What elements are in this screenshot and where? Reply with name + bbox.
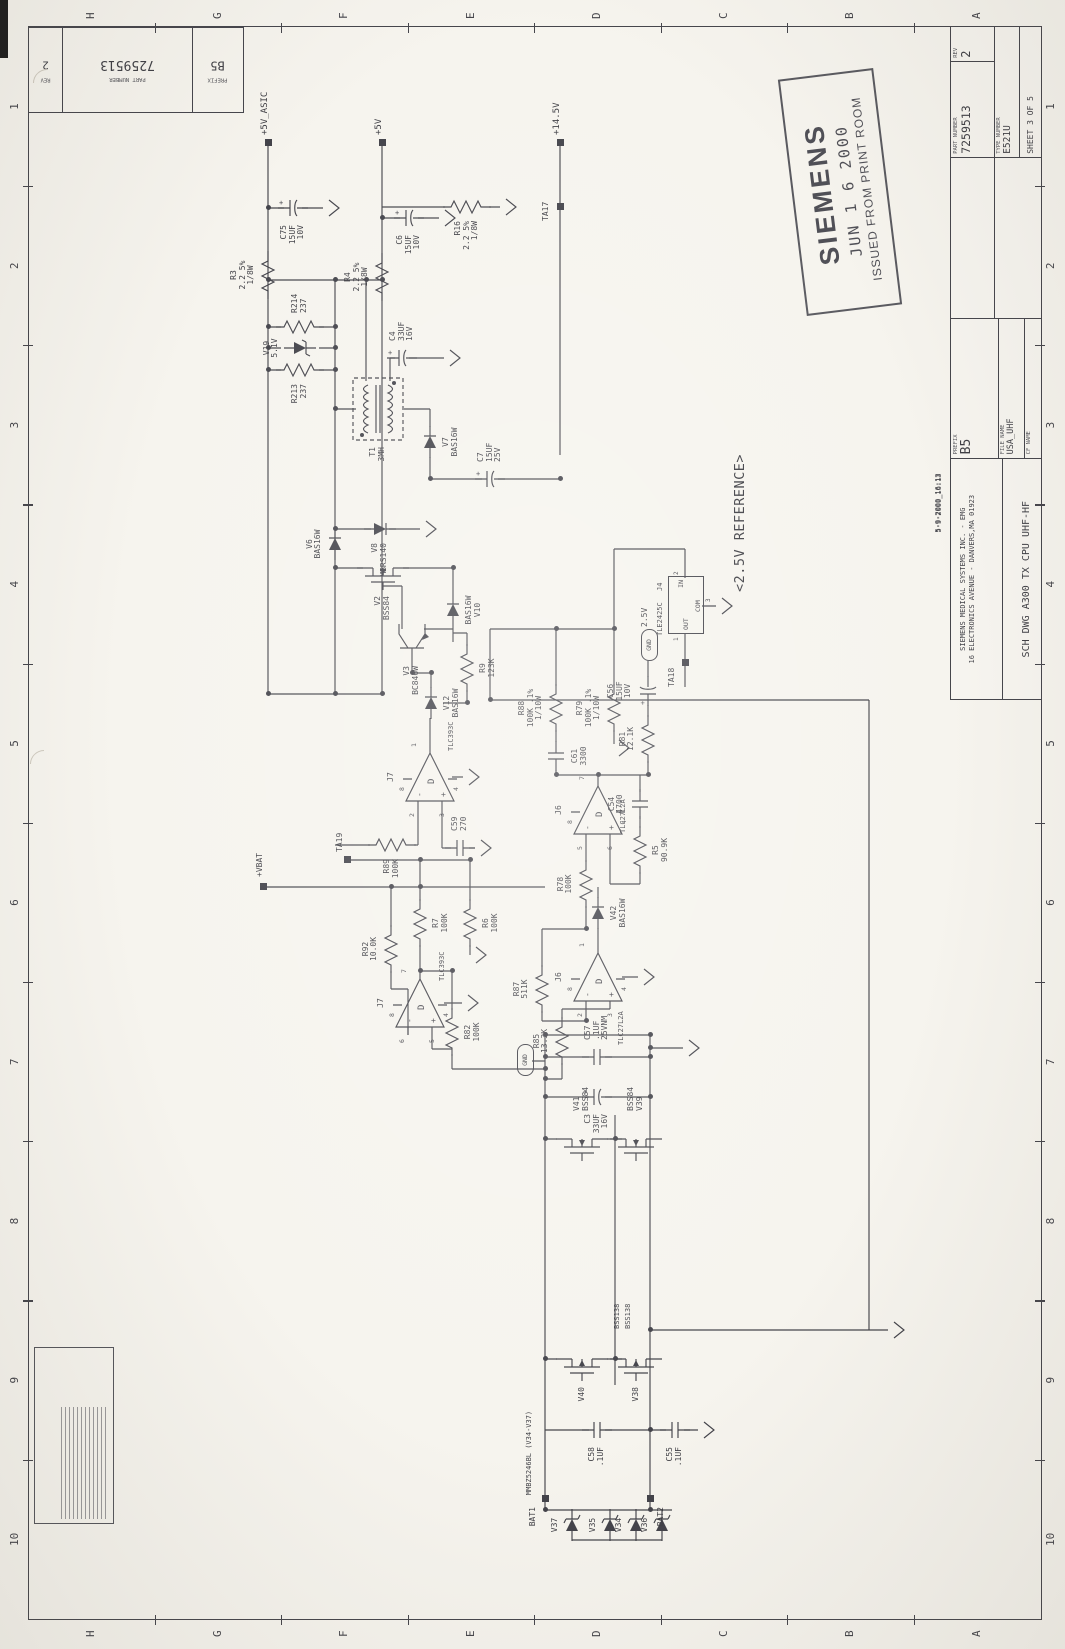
- schematic-text: TLC27L2A: [617, 1011, 625, 1045]
- grid-tick: [1035, 823, 1045, 824]
- grid-row-label: H: [84, 1630, 97, 1637]
- grid-tick: [1035, 982, 1045, 983]
- grid-tick: [23, 504, 33, 505]
- svg-text:+: +: [639, 701, 647, 705]
- component-label-V42: V42BAS16W: [610, 898, 627, 927]
- grid-tick: [23, 1300, 33, 1301]
- component-label-R6: R6100K: [482, 913, 499, 933]
- svg-text:-: -: [583, 825, 592, 830]
- grid-tick: [1035, 664, 1045, 665]
- corner-part-number-value: 7259513: [100, 58, 155, 73]
- corner-part-number-label: PART NUMBER: [100, 77, 155, 83]
- net-node-square: [260, 884, 267, 891]
- grid-row-label: A: [970, 12, 983, 19]
- ground-icon: [505, 198, 518, 216]
- component-T1: [352, 377, 404, 441]
- grid-column-label: 8: [8, 1214, 21, 1228]
- grid-tick: [23, 186, 33, 187]
- component-label-R79: R79100K .1%1/10W: [576, 688, 602, 727]
- grid-tick: [23, 345, 33, 346]
- cf-name-label: CF NAME: [1026, 323, 1032, 455]
- ground-icon: [425, 520, 438, 538]
- component-label-C4: C433UF16V: [389, 322, 415, 341]
- component-R6: [462, 899, 478, 947]
- grid-tick: [661, 1615, 662, 1625]
- component-label-J6B: J6: [555, 972, 564, 982]
- grid-tick: [23, 1460, 33, 1461]
- component-C59: [445, 837, 475, 859]
- grid-tick: [23, 1141, 33, 1142]
- type-number-value: E521U: [1002, 125, 1013, 154]
- schematic-text: TA17: [541, 202, 550, 221]
- component-V38: [610, 1337, 662, 1381]
- component-label-V12: V12BAS16W: [443, 688, 460, 717]
- pin-number: 6: [398, 1039, 406, 1043]
- grid-tick: [23, 664, 33, 665]
- grid-column-label: 4: [1044, 577, 1057, 591]
- file-name-value: USA_UHF: [1006, 419, 1016, 455]
- grid-column-label: 2: [1044, 259, 1057, 273]
- corner-prefix-value: B5: [210, 59, 224, 73]
- ground-icon: [688, 1039, 701, 1057]
- sheet-of-value: SHEET 3 OF 5: [1026, 96, 1035, 154]
- pin-number: 8: [566, 987, 574, 991]
- schematic-text: 2: [673, 571, 680, 575]
- proprietary-notes-block: [34, 1347, 114, 1524]
- ground-icon: [721, 597, 734, 615]
- schematic-text: J4: [656, 583, 664, 591]
- component-R88: [548, 684, 564, 732]
- svg-text:+: +: [279, 199, 283, 207]
- component-label-C56: C5615UF10V: [607, 681, 633, 701]
- svg-text:D: D: [595, 812, 605, 817]
- component-R16: [443, 199, 491, 215]
- plot-date: 5-9-2000_16:13: [934, 473, 942, 532]
- schematic-text: +5V_ASIC: [260, 92, 270, 135]
- component-label-C7: C715UF25V: [477, 443, 503, 462]
- component-C4: +: [387, 347, 417, 369]
- component-R9: [459, 644, 475, 692]
- component-label-C57: C57.1UF25VNM: [584, 1016, 610, 1040]
- ground-icon: [449, 349, 462, 367]
- grid-tick: [23, 982, 33, 983]
- fine-print: [61, 1407, 107, 1519]
- component-R5: [632, 826, 648, 874]
- grid-column-label: 10: [1044, 1532, 1057, 1546]
- component-C56: +: [637, 676, 659, 706]
- svg-text:D: D: [595, 979, 605, 984]
- grid-tick: [281, 23, 282, 33]
- schematic-text: TLC27L2A: [619, 799, 627, 833]
- svg-text:+: +: [429, 1018, 438, 1023]
- grid-row-label: E: [464, 12, 477, 19]
- company-address: 16 ELECTRONICS AVENUE - DANVERS,MA 01923: [968, 495, 976, 664]
- component-label-R4: R42.2 5%1/8W: [344, 262, 370, 291]
- pin-number: 4: [452, 787, 460, 791]
- svg-text:+: +: [476, 470, 480, 478]
- net-node-square: [379, 140, 386, 147]
- grid-row-label: B: [843, 1630, 856, 1637]
- grid-tick: [1035, 186, 1045, 187]
- component-label-V19: V195.1V: [263, 338, 280, 358]
- schematic-text: BSS138: [624, 1304, 632, 1329]
- pin-number: 4: [620, 987, 628, 991]
- grid-tick: [1035, 504, 1045, 505]
- grid-tick: [155, 1615, 156, 1625]
- net-node-square: [344, 857, 351, 864]
- grid-row-label: D: [590, 1630, 603, 1637]
- svg-text:-: -: [405, 1018, 414, 1023]
- part-number-value: 7259513: [959, 105, 973, 153]
- grid-column-label: 6: [1044, 896, 1057, 910]
- net-node-square: [557, 140, 564, 147]
- ground-icon: [703, 1421, 716, 1439]
- pin-number: 8: [398, 787, 406, 791]
- pin-number: 3: [438, 813, 446, 817]
- component-label-R16: R162.2 5%1/8W: [454, 221, 480, 250]
- component-V39: [610, 1117, 662, 1161]
- svg-text:D: D: [427, 779, 437, 784]
- component-label-R92: R9210.0K: [362, 937, 379, 962]
- ground-icon: [893, 1321, 906, 1339]
- schematic-text: 3: [705, 598, 712, 602]
- svg-text:+: +: [607, 992, 616, 997]
- ground-icon: [467, 994, 480, 1012]
- svg-text:+: +: [607, 825, 616, 830]
- grid-row-label: F: [337, 1630, 350, 1637]
- schematic-text: BAT2: [656, 1507, 665, 1526]
- schematic-layer: [0, 0, 1065, 1649]
- component-R89: [368, 837, 416, 853]
- pin-number: 8: [566, 820, 574, 824]
- component-V37: [564, 1509, 580, 1541]
- net-node-square: [682, 660, 689, 667]
- component-label-J7A: J7: [387, 772, 396, 782]
- svg-text:+: +: [388, 349, 392, 357]
- component-label-V10: BAS16WV10: [465, 595, 482, 624]
- ground-icon: [328, 199, 341, 217]
- component-J4: OUTINCOM: [668, 576, 704, 634]
- component-C55: [660, 1419, 690, 1441]
- grid-tick: [1035, 1300, 1045, 1301]
- grid-tick: [408, 1615, 409, 1625]
- component-V10: [445, 594, 461, 626]
- grid-tick: [408, 23, 409, 33]
- ground-icon: [468, 768, 481, 786]
- pin-number: 2: [408, 813, 416, 817]
- grid-column-label: 6: [8, 896, 21, 910]
- schematic-text: TA18: [667, 668, 676, 687]
- prefix-label: PREFIX: [953, 323, 959, 455]
- grid-column-label: 7: [1044, 1055, 1057, 1069]
- schematic-text: 1: [673, 637, 680, 641]
- net-node-square: [265, 140, 272, 147]
- component-label-J6A: J6: [555, 805, 564, 815]
- component-label-V3: V3BC846W: [403, 666, 420, 695]
- component-V3: [394, 624, 430, 660]
- grid-tick: [914, 23, 915, 33]
- component-V12: [423, 687, 439, 719]
- component-C75: +: [278, 197, 308, 219]
- grid-column-label: 8: [1044, 1214, 1057, 1228]
- grid-column-label: 2: [8, 259, 21, 273]
- svg-text:-: -: [415, 792, 424, 797]
- component-C54: [629, 789, 651, 819]
- component-label-T1: T13MH: [369, 447, 386, 462]
- component-label-C59: C59270: [451, 817, 468, 831]
- component-label-R78: R78100K: [557, 874, 574, 894]
- schematic-text: TA19: [335, 833, 344, 852]
- grid-tick: [534, 23, 535, 33]
- component-label-C75: C7515UF10V: [280, 225, 306, 245]
- prefix-value: B5: [959, 439, 974, 455]
- grid-row-label: G: [211, 1630, 224, 1637]
- component-label-V40: V40: [578, 1387, 587, 1402]
- grid-tick: [914, 1615, 915, 1625]
- schematic-text: BAT1: [528, 1507, 537, 1526]
- grid-tick: [661, 23, 662, 33]
- component-label-R82: R82100K: [464, 1022, 481, 1042]
- component-J6B: -+D: [568, 945, 628, 1009]
- pin-number: 7: [578, 776, 586, 780]
- grid-tick: [155, 23, 156, 33]
- grid-column-label: 1: [8, 100, 21, 114]
- grid-row-label: C: [717, 12, 730, 19]
- grid-tick: [1035, 345, 1045, 346]
- ground-icon: [643, 968, 656, 986]
- grid-tick: [23, 823, 33, 824]
- pin-number: 5: [576, 846, 584, 850]
- grid-column-label: 1: [1044, 100, 1057, 114]
- grid-column-label: 5: [1044, 736, 1057, 750]
- corner-prefix-label: PREFIX: [208, 77, 228, 83]
- component-V2: [357, 546, 409, 590]
- landscape-drawing: SIEMENS MEDICAL SYSTEMS INC. - EMG 16 EL…: [0, 0, 1065, 1649]
- component-label-R7: R7100K: [432, 913, 449, 933]
- schematic-text: +5V: [374, 119, 384, 135]
- pin-number: 8: [388, 1013, 396, 1017]
- component-label-R85: R8513.3K: [533, 1029, 550, 1054]
- component-label-C6: C615UF10V: [396, 235, 422, 255]
- component-V7: [422, 426, 438, 458]
- component-label-R214: R214237: [291, 294, 308, 313]
- schematic-text: MMBZ5246BL (V34-V37): [525, 1411, 533, 1495]
- grid-row-label: H: [84, 12, 97, 19]
- pin-number: 5: [428, 1039, 436, 1043]
- grid-tick: [787, 23, 788, 33]
- component-C57: [582, 1046, 612, 1068]
- grid-column-label: 7: [8, 1055, 21, 1069]
- component-C61: [545, 741, 567, 771]
- component-V40: [556, 1337, 608, 1381]
- grid-column-label: 9: [8, 1373, 21, 1387]
- svg-text:+: +: [439, 792, 448, 797]
- component-label-R89: R89100K: [383, 859, 400, 879]
- grid-row-label: D: [590, 12, 603, 19]
- ground-icon: [480, 839, 493, 857]
- component-label-J7B: J7: [377, 998, 386, 1008]
- schematic-text: TLE2425C: [656, 602, 664, 636]
- scanned-schematic-sheet: SIEMENS MEDICAL SYSTEMS INC. - EMG 16 EL…: [0, 0, 1065, 1649]
- component-C7: +: [475, 468, 505, 490]
- grid-column-label: 3: [1044, 418, 1057, 432]
- component-R7: [412, 899, 428, 947]
- grid-column-label: 3: [8, 418, 21, 432]
- scan-edge: [0, 0, 8, 58]
- schematic-text: TLC393C: [447, 721, 455, 751]
- component-V6: [327, 528, 343, 560]
- component-R213: [276, 362, 324, 378]
- drawing-title: SCH DWG A300 TX CPU UHF-HF: [1021, 501, 1032, 658]
- component-label-V35: V35: [589, 1518, 598, 1533]
- component-R81: [640, 715, 656, 763]
- component-V42: [590, 897, 606, 929]
- svg-text:-: -: [583, 992, 592, 997]
- grid-column-label: 5: [8, 736, 21, 750]
- component-label-V37: V37: [551, 1518, 560, 1533]
- title-block: SIEMENS MEDICAL SYSTEMS INC. - EMG 16 EL…: [950, 26, 1042, 700]
- component-label-R3: R32.2 5%1/8W: [230, 260, 256, 289]
- pin-number: 1: [410, 743, 418, 747]
- component-label-V6: V6BAS16W: [306, 529, 323, 558]
- svg-text:D: D: [417, 1005, 427, 1010]
- component-V8: [364, 521, 396, 537]
- pin-number: 7: [400, 969, 408, 973]
- net-node-square: [647, 1496, 654, 1503]
- component-label-V34: V34: [615, 1518, 624, 1533]
- component-V19: [284, 340, 316, 356]
- component-label-V2: V2BSS84: [374, 596, 391, 621]
- corner-part-number-block: REV 2 PART NUMBER 7259513 PREFIX B5: [28, 27, 244, 113]
- component-label-R213: R213237: [291, 384, 308, 404]
- schematic-text: BSS138: [613, 1304, 621, 1329]
- ground-icon: [475, 946, 488, 964]
- net-node-square: [557, 204, 564, 211]
- grid-row-label: E: [464, 1630, 477, 1637]
- component-label-V7: V7BAS16W: [442, 427, 459, 456]
- component-label-V39: BSS84V39: [627, 1087, 644, 1111]
- schematic-text: +14.5V: [552, 102, 562, 135]
- component-label-R81: R8112.1K: [619, 727, 636, 752]
- grid-column-label: 9: [1044, 1373, 1057, 1387]
- component-R3: [260, 251, 276, 299]
- grid-row-label: G: [211, 12, 224, 19]
- grid-column-label: 10: [8, 1532, 21, 1546]
- grid-row-label: F: [337, 12, 350, 19]
- grid-row-label: C: [717, 1630, 730, 1637]
- svg-text:+: +: [395, 209, 399, 217]
- grid-tick: [787, 1615, 788, 1625]
- component-V41: [556, 1117, 608, 1161]
- component-label-V38: V38: [632, 1387, 641, 1402]
- pin-number: 2: [576, 1013, 584, 1017]
- component-label-R88: R88100K .1%1/10W: [518, 688, 544, 727]
- ground-reference-oval: GND: [517, 1044, 534, 1076]
- component-R85: [554, 1017, 570, 1065]
- pin-number: 3: [606, 1013, 614, 1017]
- pin-number: 1: [578, 943, 586, 947]
- component-label-R87: R87511K: [513, 979, 530, 999]
- schematic-text: TLC393C: [438, 951, 446, 981]
- company-name: SIEMENS MEDICAL SYSTEMS INC. - EMG: [959, 508, 967, 651]
- component-label-C58: C58.1UF: [588, 1447, 605, 1467]
- component-R214: [276, 319, 324, 335]
- component-label-C55: C55.1UF: [666, 1447, 683, 1467]
- rev-value: 2: [959, 51, 973, 58]
- section-label: <2.5V REFERENCE>: [732, 454, 748, 592]
- pin-number: 6: [606, 846, 614, 850]
- grid-row-label: B: [843, 12, 856, 19]
- component-label-C61: C613300: [571, 746, 588, 766]
- grid-row-label: A: [970, 1630, 983, 1637]
- net-node-square: [542, 1496, 549, 1503]
- schematic-text: +VBAT: [255, 853, 264, 877]
- schematic-text: 2.5V: [640, 608, 649, 627]
- component-R92: [383, 925, 399, 973]
- component-J7A: -+D: [400, 745, 460, 809]
- component-label-R9: R9123K: [479, 658, 496, 678]
- component-R87: [534, 965, 550, 1013]
- grid-column-label: 4: [8, 577, 21, 591]
- pin-number: 4: [442, 1013, 450, 1017]
- grid-tick: [1035, 1141, 1045, 1142]
- component-label-V41: V41BSS84: [573, 1087, 590, 1111]
- component-C6: +: [394, 207, 424, 229]
- grid-tick: [281, 1615, 282, 1625]
- grid-tick: [534, 1615, 535, 1625]
- component-label-R5: R590.9K: [652, 838, 669, 863]
- grid-tick: [1035, 1460, 1045, 1461]
- component-R4: [374, 253, 390, 301]
- component-C58: [582, 1419, 612, 1441]
- component-label-V36: V36: [641, 1518, 650, 1533]
